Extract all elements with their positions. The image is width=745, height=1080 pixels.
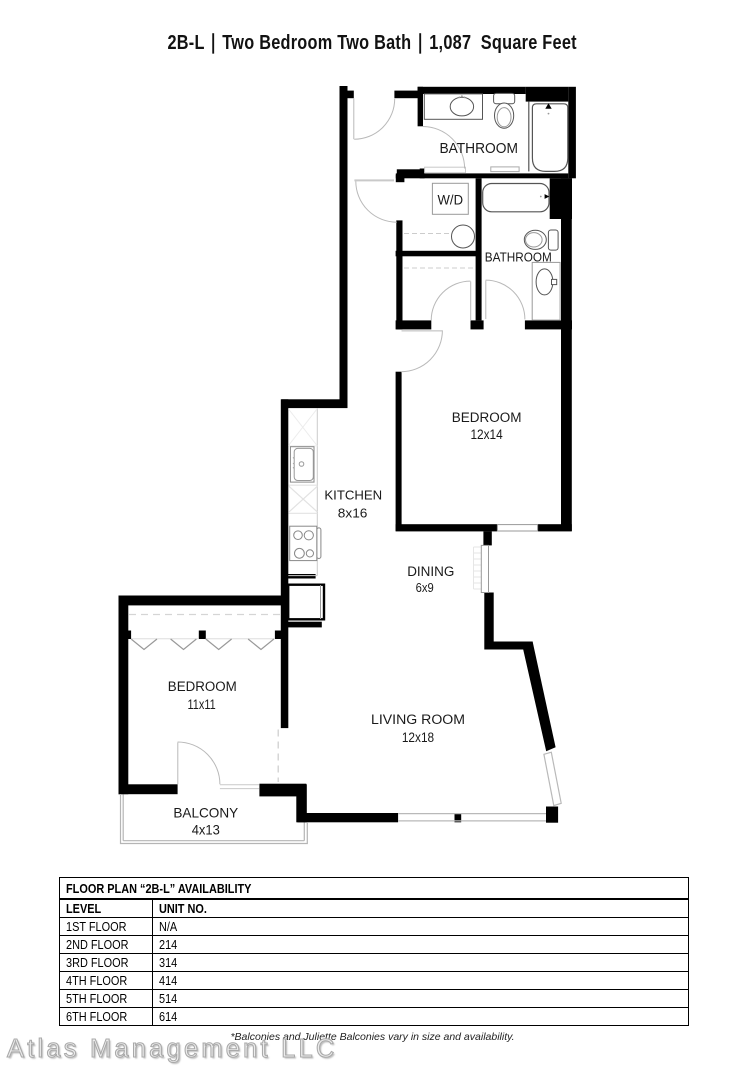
- svg-text:DINING: DINING: [407, 564, 454, 579]
- svg-text:BATHROOM: BATHROOM: [439, 140, 518, 157]
- svg-text:KITCHEN: KITCHEN: [324, 488, 382, 503]
- svg-text:BATHROOM: BATHROOM: [485, 249, 552, 264]
- svg-text:8x16: 8x16: [338, 505, 368, 520]
- svg-text:12x14: 12x14: [470, 427, 503, 442]
- svg-text:6x9: 6x9: [416, 580, 434, 595]
- svg-text:W/D: W/D: [438, 192, 464, 208]
- svg-text:11x11: 11x11: [188, 697, 216, 712]
- svg-text:BEDROOM: BEDROOM: [168, 679, 237, 694]
- svg-text:BEDROOM: BEDROOM: [452, 410, 522, 425]
- svg-text:4x13: 4x13: [192, 822, 220, 837]
- svg-text:12x18: 12x18: [402, 730, 434, 745]
- svg-text:LIVING ROOM: LIVING ROOM: [371, 711, 465, 727]
- svg-text:BALCONY: BALCONY: [173, 805, 238, 820]
